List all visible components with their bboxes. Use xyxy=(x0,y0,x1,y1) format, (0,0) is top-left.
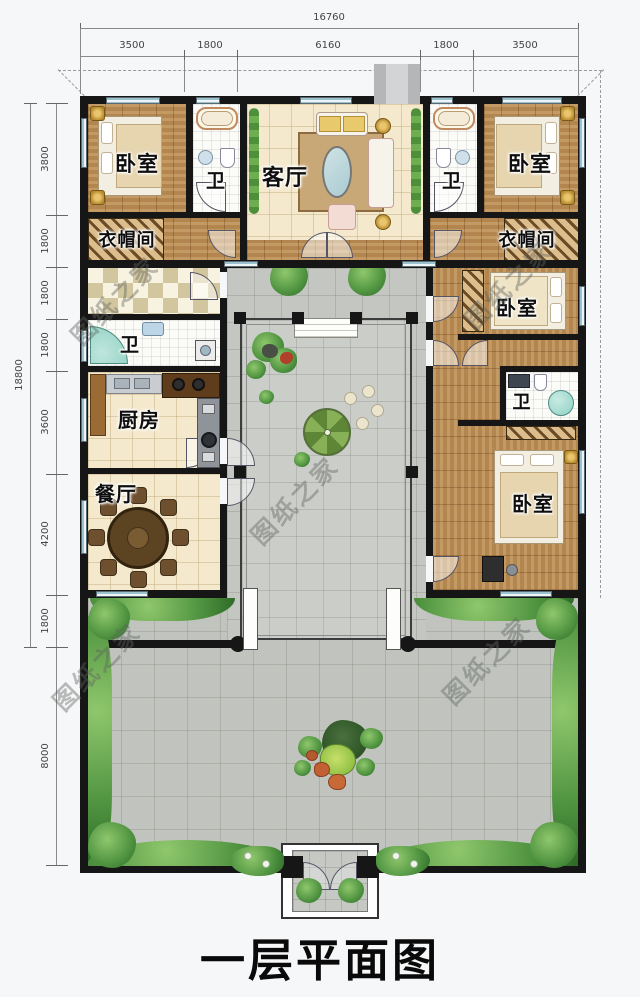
gate-post xyxy=(243,588,258,650)
stove-burner xyxy=(172,378,185,391)
dim-tick xyxy=(46,215,68,216)
pillow xyxy=(530,454,554,466)
column xyxy=(292,312,304,324)
dim-ext xyxy=(80,28,81,94)
dim-tick xyxy=(46,474,68,475)
page-title: 一层平面图 xyxy=(0,924,640,989)
room-label-bedroom-top-right: 卧室 xyxy=(482,148,578,178)
nightstand xyxy=(90,190,105,205)
pillow xyxy=(545,122,557,144)
wall-west-wing-inner xyxy=(220,504,227,598)
dim-top-seg-5: 3500 xyxy=(495,40,555,52)
wall-west-wing-inner xyxy=(220,464,227,478)
room-label-cloak-left: 衣帽间 xyxy=(62,226,192,252)
north-porch-path xyxy=(386,64,408,104)
sofa-seat xyxy=(328,204,356,230)
dim-left-seg-4: 1800 xyxy=(40,317,52,373)
dim-top-total: 16760 xyxy=(279,12,379,24)
dim-tick xyxy=(46,371,68,372)
dim-left-seg-7: 1800 xyxy=(40,593,52,649)
column xyxy=(406,466,418,478)
column xyxy=(234,466,246,478)
window xyxy=(500,591,552,597)
desk xyxy=(482,556,504,582)
desk-chair xyxy=(506,564,518,576)
dim-left-seg-5: 3600 xyxy=(40,394,52,450)
dim-top-seg-2: 1800 xyxy=(180,40,240,52)
wall-kitchen-dining xyxy=(88,468,220,474)
dim-left-seg-8: 8000 xyxy=(40,728,52,784)
nightstand xyxy=(560,190,575,205)
window xyxy=(300,97,352,104)
dim-top-seg-4: 1800 xyxy=(416,40,476,52)
dim-ext xyxy=(578,28,579,94)
dim-tick xyxy=(24,647,37,648)
window xyxy=(579,286,585,326)
dining-chair xyxy=(172,529,189,546)
dim-line xyxy=(30,103,31,647)
flower-dot xyxy=(262,860,270,868)
dining-chair xyxy=(88,529,105,546)
dim-tick xyxy=(46,595,68,596)
bath-cabinet xyxy=(508,374,530,388)
bathtub-inner xyxy=(438,111,470,126)
dim-top-seg-3: 6160 xyxy=(298,40,358,52)
stepping-stone xyxy=(362,385,375,398)
nightstand xyxy=(90,106,105,121)
small-appliance xyxy=(202,452,215,462)
room-label-living: 客厅 xyxy=(240,160,330,192)
sink xyxy=(198,150,213,165)
dim-tick xyxy=(46,865,68,866)
eave-line-right xyxy=(600,70,601,598)
flower-dot xyxy=(410,860,418,868)
dim-left-seg-3: 1800 xyxy=(40,265,52,321)
window xyxy=(106,97,160,104)
wall-west-wing-inner xyxy=(220,298,227,438)
gate-post xyxy=(386,588,401,650)
orange-rock xyxy=(306,750,318,761)
stepping-stone xyxy=(356,417,369,430)
column xyxy=(406,312,418,324)
room-label-bedroom-top-left: 卧室 xyxy=(88,148,186,178)
toilet xyxy=(436,148,451,168)
orange-rock xyxy=(314,762,330,777)
dining-table-center xyxy=(127,527,149,549)
sink xyxy=(455,150,470,165)
kitchen-corner-cabinet xyxy=(162,373,220,398)
dim-line xyxy=(80,28,578,29)
window xyxy=(502,97,562,104)
dim-left-seg-6: 4200 xyxy=(40,506,52,562)
room-label-kitchen: 厨房 xyxy=(84,404,194,433)
kitchen-sink xyxy=(114,378,130,389)
room-label-dining: 餐厅 xyxy=(64,478,168,507)
dim-tick xyxy=(46,103,68,104)
ornament-disc xyxy=(375,214,391,230)
pillow xyxy=(500,454,524,466)
room-label-bath-east: 卫 xyxy=(500,388,544,414)
washing-machine-door xyxy=(200,345,211,356)
sofa-cushion xyxy=(343,116,365,132)
room-label-bedroom-east-2: 卧室 xyxy=(478,488,588,517)
dining-chair xyxy=(160,559,177,576)
flower-dot xyxy=(244,852,252,860)
shower xyxy=(548,390,574,416)
dim-ext xyxy=(184,60,185,92)
wall-bath-kitchen xyxy=(88,366,220,372)
stepping-stone xyxy=(344,392,357,405)
wall-cloak-left-top xyxy=(88,212,240,218)
room-label-bath-top-left: 卫 xyxy=(196,166,236,193)
dim-ext xyxy=(237,60,238,92)
wall-east-wing-inner xyxy=(426,322,433,340)
window xyxy=(402,261,436,267)
dim-line xyxy=(80,56,578,57)
small-appliance xyxy=(202,404,215,414)
window xyxy=(81,118,87,168)
nightstand xyxy=(564,450,578,464)
floor-plan-canvas: 16760 3500 1800 6160 1800 3500 18800 380… xyxy=(0,0,640,997)
wall-east-wing-inner xyxy=(426,366,433,556)
dim-left-seg-1: 3800 xyxy=(40,131,52,187)
dim-top-seg-1: 3500 xyxy=(102,40,162,52)
stepping-stone xyxy=(371,404,384,417)
window xyxy=(96,591,148,597)
wall-bedtl-bathtl xyxy=(186,96,193,218)
flower-dot xyxy=(392,852,400,860)
plant-strip xyxy=(411,108,421,214)
wall-bath-east-top xyxy=(500,366,578,372)
room-label-bath-top-right: 卫 xyxy=(432,166,472,193)
dim-tick xyxy=(46,267,68,268)
window xyxy=(431,97,453,104)
gate-flowerbed xyxy=(230,846,284,876)
room-label-bath-west: 卫 xyxy=(110,330,150,357)
window xyxy=(196,97,220,104)
pillow xyxy=(101,122,113,144)
wardrobe-hatch xyxy=(506,426,576,440)
window xyxy=(224,261,258,267)
stove-burner xyxy=(192,378,205,391)
column xyxy=(400,636,416,652)
dining-chair xyxy=(130,571,147,588)
dim-left-total: 18800 xyxy=(14,347,26,403)
sofa-cushion xyxy=(319,116,341,132)
dim-left-seg-2: 1800 xyxy=(40,213,52,269)
nightstand xyxy=(560,106,575,121)
bathtub-inner xyxy=(201,111,233,126)
toilet xyxy=(220,148,235,168)
dim-tick xyxy=(46,647,68,648)
orange-rock xyxy=(328,774,346,790)
column xyxy=(234,312,246,324)
ornament-disc xyxy=(375,118,391,134)
window xyxy=(81,500,87,554)
dim-tick xyxy=(46,319,68,320)
parasol-center xyxy=(324,429,331,436)
gate-pier xyxy=(281,856,303,878)
eave-line-top xyxy=(58,70,602,71)
dim-ext xyxy=(420,60,421,92)
dining-chair xyxy=(100,559,117,576)
dim-tick xyxy=(24,103,37,104)
wall-living-bathtr xyxy=(423,96,430,264)
window xyxy=(579,118,585,168)
rock xyxy=(262,344,278,358)
wall-bedroom-e1-bottom xyxy=(458,334,578,340)
kitchen-sink xyxy=(134,378,150,389)
sofa-right xyxy=(368,138,394,208)
dim-ext xyxy=(473,60,474,92)
cooktop xyxy=(201,432,217,448)
column xyxy=(350,312,362,324)
wall-cloak-right-top xyxy=(430,212,578,218)
dim-line xyxy=(56,103,57,865)
